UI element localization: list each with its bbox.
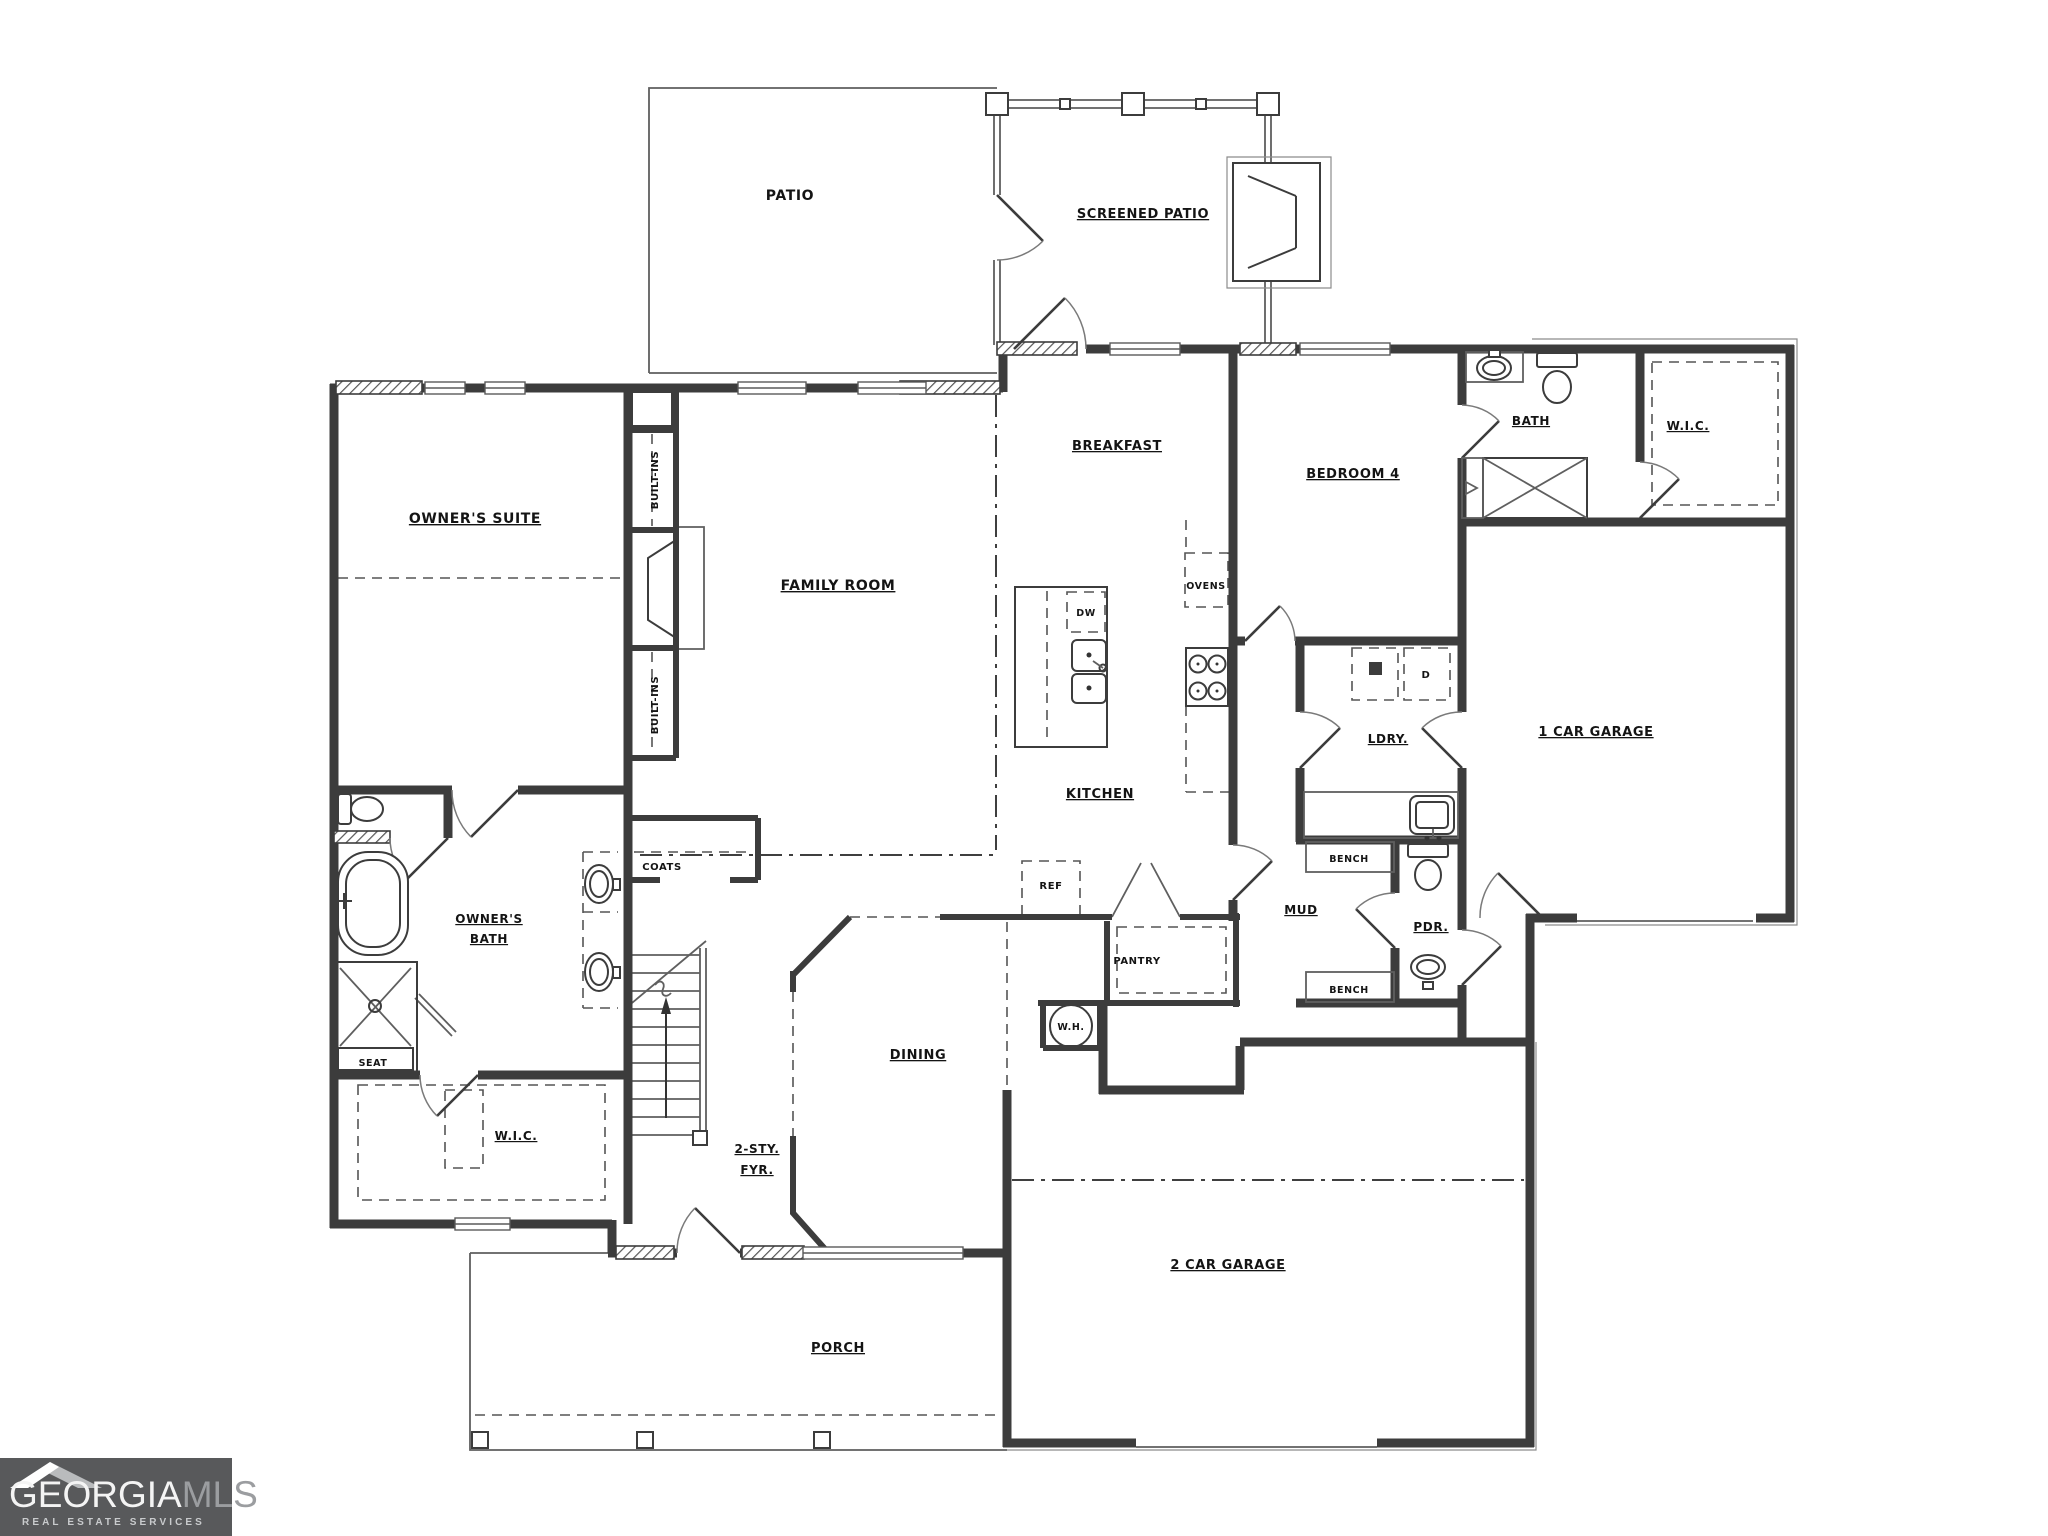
- room-label-foyer-line2: FYR.: [740, 1163, 773, 1177]
- room-label-laundry: LDRY.: [1368, 732, 1408, 746]
- room-label-1-car-garage: 1 CAR GARAGE: [1538, 725, 1653, 740]
- floor-plan-page: { "rooms": { "patio": "PATIO", "screened…: [0, 0, 2048, 1536]
- bath-vanity: [1466, 350, 1523, 382]
- window: [738, 382, 806, 394]
- utility-sink-icon: [1304, 792, 1458, 841]
- room-label-patio: PATIO: [766, 188, 814, 204]
- logo-tagline: REAL ESTATE SERVICES: [22, 1517, 205, 1528]
- hatched-wall-layer: [334, 342, 1296, 1259]
- room-label-kitchen: KITCHEN: [1066, 787, 1134, 802]
- room-label-dining: DINING: [890, 1048, 947, 1063]
- window: [425, 382, 465, 394]
- fixture-label-refrigerator: REF: [1039, 881, 1062, 892]
- fixture-label-bench-upper: BENCH: [1329, 854, 1369, 865]
- door: [1422, 712, 1462, 768]
- door: [1356, 893, 1395, 948]
- washer-icon: [1369, 662, 1382, 675]
- fixture-label-built-ins-upper: BUILT-INS: [650, 451, 661, 509]
- georgia-mls-logo: GEORGIAMLS REAL ESTATE SERVICES: [0, 1458, 232, 1536]
- fixture-label-seat: SEAT: [359, 1058, 388, 1069]
- room-label-bath: BATH: [1512, 414, 1550, 428]
- door: [420, 1075, 478, 1116]
- door: [452, 790, 518, 837]
- door: [1480, 873, 1543, 918]
- door: [1640, 462, 1679, 518]
- room-label-wic-upper: W.I.C.: [1667, 419, 1710, 433]
- tub-shower-icon: [1462, 458, 1587, 518]
- room-label-wic-lower: W.I.C.: [495, 1129, 538, 1143]
- interior-walls-layer: [628, 392, 1240, 1249]
- window: [455, 1218, 510, 1230]
- room-label-screened-patio: SCREENED PATIO: [1077, 207, 1209, 222]
- room-label-mud: MUD: [1284, 903, 1317, 917]
- porch-posts: [472, 1432, 830, 1448]
- window: [485, 382, 525, 394]
- toilet-icon: [1537, 353, 1577, 403]
- room-label-bedroom-4: BEDROOM 4: [1306, 467, 1400, 482]
- door: [1462, 405, 1499, 458]
- room-label-breakfast: BREAKFAST: [1072, 439, 1162, 454]
- room-label-family-room: FAMILY ROOM: [781, 578, 896, 594]
- door: [1233, 845, 1272, 900]
- fixture-label-built-ins-lower: BUILT-INS: [650, 676, 661, 734]
- door: [677, 1208, 740, 1253]
- door: [1245, 606, 1295, 641]
- sink-icon: [585, 865, 620, 903]
- windows-layer: [425, 343, 1390, 1259]
- logo-brand: GEORGIAMLS: [9, 1476, 258, 1513]
- room-label-powder: PDR.: [1413, 920, 1448, 934]
- fixture-label-water-heater: W.H.: [1057, 1022, 1084, 1033]
- patio-posts: [986, 93, 1279, 115]
- room-label-foyer-line1: 2-STY.: [734, 1142, 779, 1156]
- room-label-porch: PORCH: [811, 1341, 865, 1356]
- cooktop-icon: [1186, 648, 1228, 706]
- logo-brand-secondary: MLS: [182, 1474, 258, 1515]
- window: [1110, 343, 1180, 355]
- door: [1462, 930, 1501, 985]
- floor-plan-drawing: PATIO SCREENED PATIO OWNER'S SUITE BUILT…: [0, 0, 2048, 1536]
- room-label-pantry: PANTRY: [1113, 956, 1160, 967]
- room-label-owners-bath-line2: BATH: [470, 932, 508, 946]
- window: [803, 1247, 963, 1259]
- toilet-icon: [1408, 844, 1448, 890]
- door: [1300, 712, 1340, 768]
- fixture-label-coats: COATS: [642, 862, 682, 873]
- fixture-label-dishwasher: DW: [1076, 608, 1096, 619]
- sink-icon: [585, 953, 620, 991]
- exterior-walls-layer: [330, 343, 1794, 1447]
- room-label-2-car-garage: 2 CAR GARAGE: [1170, 1258, 1285, 1273]
- room-label-owners-suite: OWNER'S SUITE: [409, 511, 541, 527]
- room-label-owners-bath-line1: OWNER'S: [455, 912, 522, 926]
- logo-brand-primary: GEORGIA: [9, 1474, 182, 1515]
- fixture-label-bench-lower: BENCH: [1329, 985, 1369, 996]
- toilet-icon: [338, 794, 383, 824]
- sink-icon: [1411, 955, 1445, 989]
- window: [1300, 343, 1390, 355]
- fixture-label-dryer: D: [1422, 670, 1431, 681]
- window: [858, 382, 926, 394]
- fixtures-layer: [334, 93, 1587, 1448]
- door: [997, 195, 1043, 260]
- bathtub-icon: [334, 852, 408, 955]
- fixture-label-ovens: OVENS: [1186, 581, 1225, 592]
- fireplace-icon: [1233, 163, 1320, 281]
